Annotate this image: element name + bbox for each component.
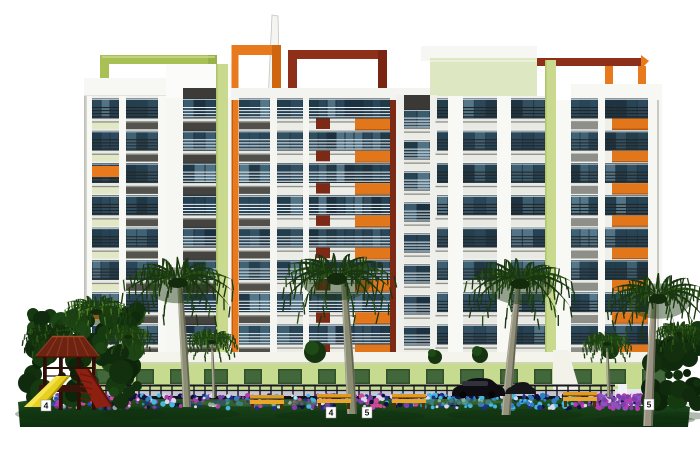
svg-text:4: 4 bbox=[329, 408, 334, 418]
svg-text:4: 4 bbox=[44, 401, 49, 411]
svg-text:5: 5 bbox=[647, 400, 652, 410]
svg-text:5: 5 bbox=[365, 408, 370, 418]
